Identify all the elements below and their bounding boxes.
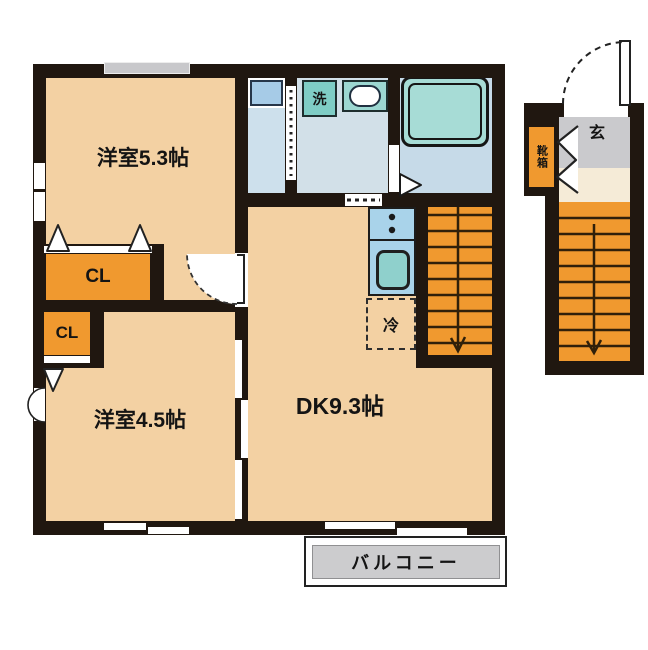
closet-2-track [44,356,90,363]
external-stairs [559,202,630,361]
entrance-wall-right [630,103,644,375]
washer-label: 洗 [302,80,337,117]
kitchen-counter-divider [370,239,414,241]
internal-stairs [428,207,492,355]
closet-1-label: CL [46,264,150,290]
washroom-door-opening [345,194,382,206]
entrance-door-leaf [619,40,631,106]
window-top [104,62,190,74]
balcony-sliding-door-2 [397,528,467,535]
door-leaf-room53 [233,254,245,304]
closet-1-track [44,246,152,253]
bath-door-opening [389,145,399,192]
entrance-wall-bottom [545,361,644,375]
wall-outer-right [492,64,505,535]
sliding-door-panel-1 [235,340,242,398]
door-swing-arc-entrance [563,42,625,104]
floorplan: 洋室5.3帖 洋室4.5帖 DK9.3帖 CL CL 洗 冷 玄 靴箱 バルコニ… [0,0,648,650]
room-5-3-label: 洋室5.3帖 [55,144,231,170]
toilet-tank [250,80,283,106]
window-bottom-room45-2 [148,527,189,534]
sliding-door-panel-2 [241,400,248,458]
balcony-sliding-door-1 [325,522,395,529]
wall-stairs-left [416,193,428,368]
room-4-5-label: 洋室4.5帖 [52,406,228,432]
entrance-wall-left [545,196,559,375]
bathtub-inner-rim [408,83,482,140]
shoebox-label: 靴箱 [529,127,554,187]
kitchen-sink [376,250,410,290]
toilet-door-opening [286,86,296,180]
sliding-door-panel-3 [235,460,242,519]
genkan-label: 玄 [572,119,622,143]
bathtub [401,76,489,147]
wall-stairs-bottom [416,355,505,368]
entrance-landing [559,168,630,202]
window-left-upper-mullion [34,189,45,192]
dk-label: DK9.3帖 [255,390,425,418]
balcony-label: バルコニー [312,545,500,579]
window-left-upper [34,163,45,221]
window-bottom-room45-1 [104,523,146,530]
closet-2-label: CL [44,321,90,345]
washbasin-bowl [349,85,381,107]
fridge-label: 冷 [366,298,416,350]
window-left-lower [34,388,45,421]
